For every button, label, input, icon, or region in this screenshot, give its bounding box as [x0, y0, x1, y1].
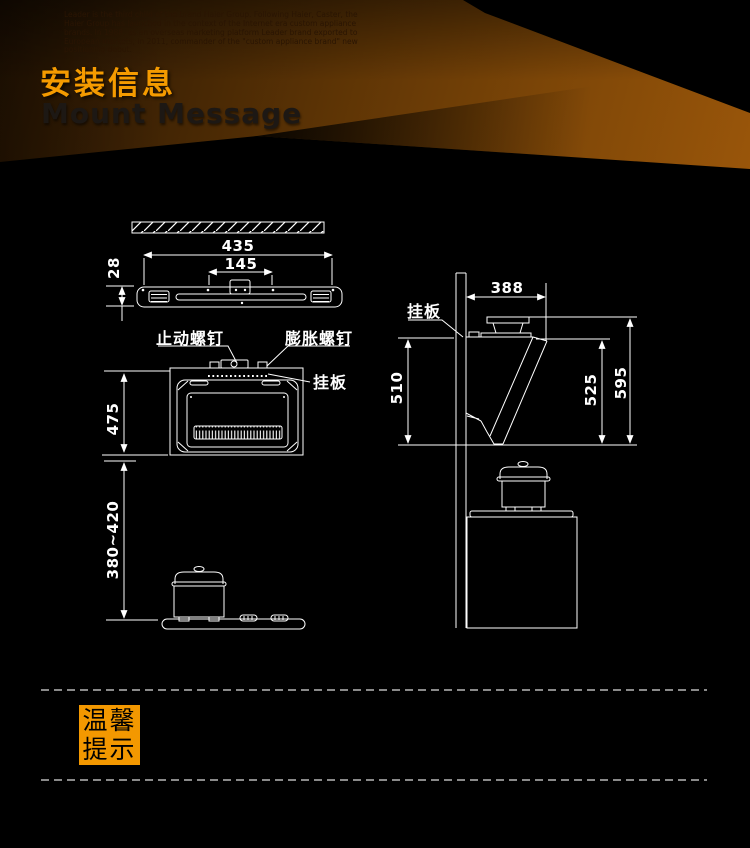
dashed-divider-bottom [41, 779, 707, 781]
warm-tips-badge: 温馨 提示 [79, 705, 140, 765]
stove-front-view [162, 567, 305, 630]
dim-back-height: 510 [388, 372, 406, 405]
hood-front-view [170, 360, 303, 455]
warm-tips-line1: 温馨 [82, 706, 136, 735]
wall-side-view [456, 273, 466, 628]
dim-plate-hole-span: 145 [225, 255, 258, 273]
dim-front-height: 525 [582, 374, 600, 407]
dim-hood-to-stove: 380~420 [104, 501, 122, 580]
page: Leader is the third child of the brand H… [0, 0, 750, 848]
label-hanging-plate-front: 挂板 [313, 369, 347, 393]
warm-tips-line2: 提示 [82, 735, 136, 764]
dim-510-geometry [398, 338, 637, 445]
dim-28-geometry [106, 286, 134, 321]
wall-hatch-strip [132, 222, 324, 233]
dim-depth: 388 [491, 279, 524, 297]
label-stop-screw: 止动螺钉 [156, 325, 224, 349]
dim-hood-height: 475 [104, 403, 122, 436]
dashed-divider-top [41, 689, 707, 691]
dim-plate-width: 435 [222, 237, 255, 255]
dim-145-geometry [209, 272, 272, 285]
label-expansion-screw: 膨胀螺钉 [285, 325, 353, 349]
dim-plate-height: 28 [105, 257, 123, 279]
cabinet-side-view [467, 462, 577, 629]
label-hanging-plate-side: 挂板 [407, 298, 441, 322]
hood-side-view [466, 317, 547, 444]
dim-total-height: 595 [612, 367, 630, 400]
side-label-leader [408, 320, 463, 337]
mounting-plate-view [137, 280, 342, 307]
